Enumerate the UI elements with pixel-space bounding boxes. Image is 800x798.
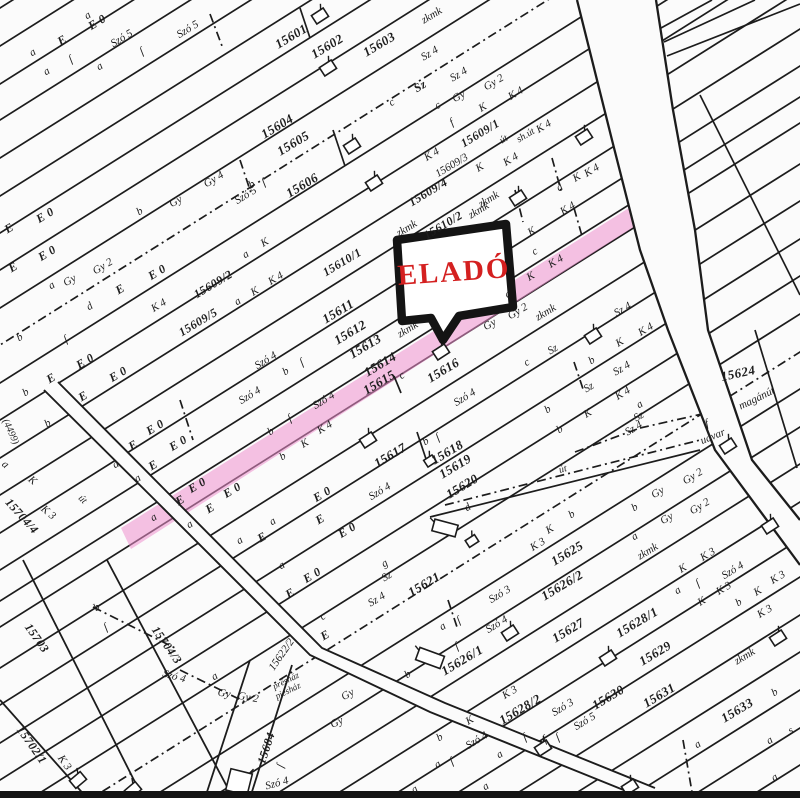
parcel-boundary-line [0, 458, 800, 798]
building-outline [465, 535, 479, 548]
parcel-boundary-line [180, 400, 193, 440]
parcel-boundary-line [0, 308, 800, 798]
parcel-boundary-line [0, 0, 800, 164]
building-outline [416, 647, 445, 668]
building-outline [69, 772, 86, 789]
building-outline [311, 8, 328, 24]
parcel-boundary-line [0, 609, 800, 798]
parcel-boundary-line [0, 346, 800, 798]
parcel-boundary-line [667, 4, 800, 56]
parcel-boundary-line [640, 414, 702, 428]
parcel-boundary-line [755, 330, 797, 468]
parcel-boundary-line [333, 130, 345, 166]
building-symbol [309, 4, 329, 24]
parcel-boundary-line [552, 158, 562, 194]
building-symbol [597, 646, 617, 666]
building-outline [501, 625, 518, 641]
building-outline [584, 328, 601, 344]
parcel-boundary-line [0, 646, 800, 798]
cadastral-map: ELADÓ aE 0Szó 5156011560215603zkmkESzó 5… [0, 0, 800, 798]
parcel-boundary-line [0, 0, 800, 14]
building-symbol [427, 518, 458, 537]
building-symbol [499, 621, 519, 641]
parcel-boundary-line [683, 740, 692, 792]
parcel-boundary-line [664, 0, 755, 42]
southwest-parcel-lines [0, 560, 292, 798]
parcel-boundary-line [240, 160, 252, 196]
map-canvas: ELADÓ [0, 0, 800, 798]
parcel-boundary-line [574, 208, 582, 236]
building-symbol [582, 324, 602, 344]
parcel-boundary-line [0, 722, 800, 798]
parcel-boundary-line [93, 607, 175, 648]
building-outline [319, 60, 336, 76]
building-symbol [363, 171, 383, 191]
map-frame-bottom [0, 791, 800, 798]
parcel-boundary-line [700, 95, 800, 295]
building-symbol [357, 428, 377, 448]
building-symbol [226, 764, 254, 796]
parcel-boundary-line [394, 376, 401, 393]
building-symbol [411, 646, 445, 669]
parcel-boundary-line [575, 428, 640, 452]
building-outline [432, 519, 458, 537]
building-outline [343, 138, 360, 154]
parcel-strip-lines [0, 0, 800, 798]
highlighted-parcel [121, 196, 654, 549]
for-sale-callout: ELADÓ [396, 224, 513, 340]
parcel-boundary-line [300, 8, 310, 38]
building-symbol [462, 530, 478, 547]
building-symbol [341, 134, 361, 154]
parcel-boundary-line [0, 533, 800, 798]
building-outline [359, 432, 376, 448]
